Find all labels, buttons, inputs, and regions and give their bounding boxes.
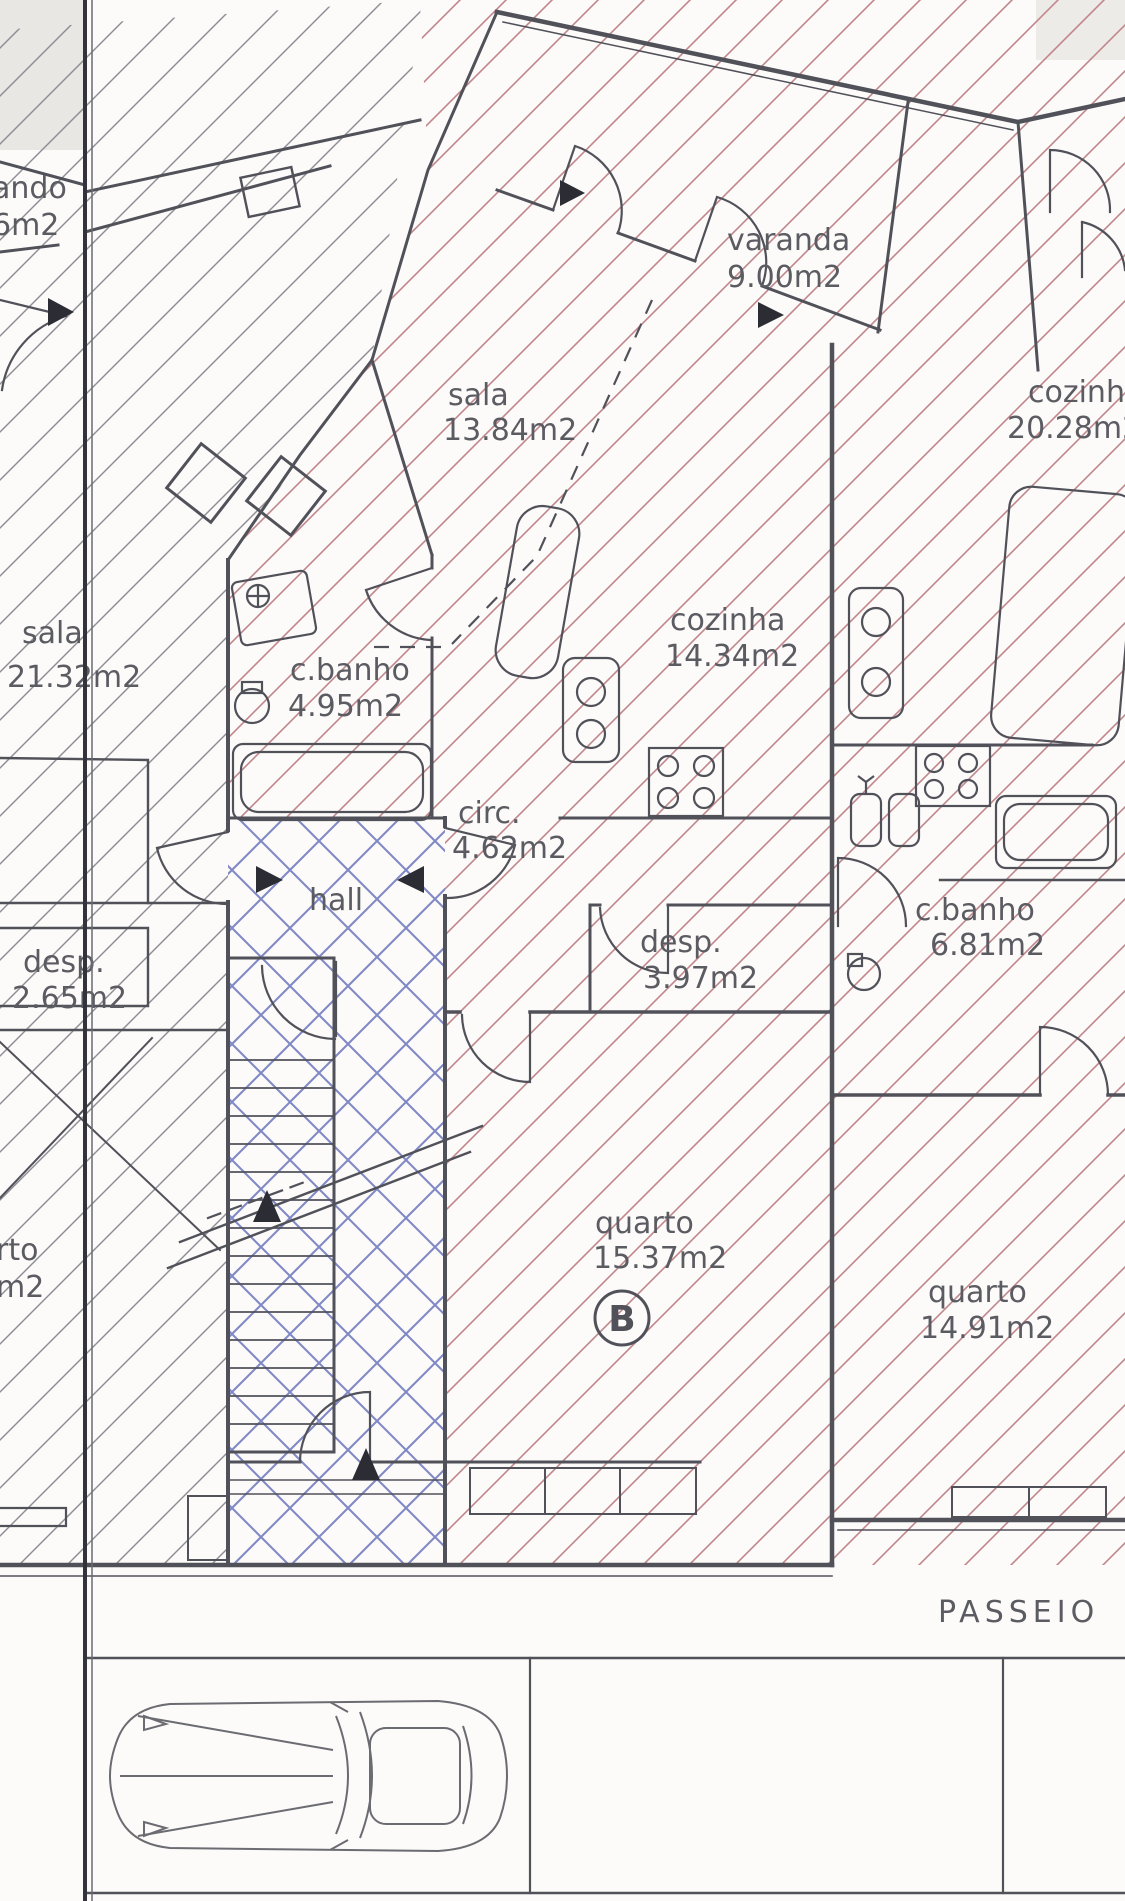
label-passeio: PASSEIO xyxy=(938,1595,1099,1630)
label-quarto-b-area: 15.37m2 xyxy=(593,1241,727,1276)
label-varanda-area: 9.00m2 xyxy=(727,260,842,295)
label-varanda-name: varanda xyxy=(727,223,850,258)
parking-bay-dividers xyxy=(530,1658,1003,1893)
label-sala-left-name: sala xyxy=(22,616,83,651)
label-cozinha-b-area: 14.34m2 xyxy=(665,639,799,674)
label-desp-b-name: desp. xyxy=(640,925,722,960)
car-windshield xyxy=(336,1712,372,1838)
label-circ-name: circ. xyxy=(458,796,521,831)
label-desp-left-area: 2.65m2 xyxy=(12,981,127,1016)
label-cbanho-right-area: 6.81m2 xyxy=(930,928,1045,963)
label-quarto-left-frag-1: rto xyxy=(0,1233,38,1268)
car-top-view xyxy=(110,1701,507,1851)
label-cbanho-right-name: c.banho xyxy=(915,893,1035,928)
label-hall: hall xyxy=(309,883,363,918)
label-quarto-b-name: quarto xyxy=(595,1206,694,1241)
label-varanda-left-frag-1: ando xyxy=(0,171,67,206)
label-cozinha-right-area: 20.28m2 xyxy=(1007,411,1125,446)
car-hood-lines xyxy=(120,1716,333,1836)
scanned-floor-plan: B varanda 9.00m2 sala 13.84m2 cozinha 20… xyxy=(0,0,1125,1901)
label-quarto-left-frag-2: m2 xyxy=(0,1270,44,1305)
label-sala-left-area: 21.32m2 xyxy=(7,660,141,695)
label-varanda-left-frag-2: 6m2 xyxy=(0,208,59,243)
floor-plan-svg: B varanda 9.00m2 sala 13.84m2 cozinha 20… xyxy=(0,0,1125,1901)
label-quarto-right-name: quarto xyxy=(928,1275,1027,1310)
label-cozinha-right-name: cozinha xyxy=(1028,375,1125,410)
label-cozinha-b-name: cozinha xyxy=(670,603,785,638)
label-cbanho-b-area: 4.95m2 xyxy=(288,689,403,724)
unit-b-letter: B xyxy=(608,1299,635,1340)
label-sala-b-name: sala xyxy=(448,378,509,413)
car-rear-window xyxy=(463,1726,472,1824)
label-quarto-right-area: 14.91m2 xyxy=(920,1311,1054,1346)
label-cbanho-b-name: c.banho xyxy=(290,653,410,688)
car-sunroof xyxy=(370,1728,460,1824)
label-desp-b-area: 3.97m2 xyxy=(643,961,758,996)
label-sala-b-area: 13.84m2 xyxy=(443,413,577,448)
label-circ-area: 4.62m2 xyxy=(452,831,567,866)
